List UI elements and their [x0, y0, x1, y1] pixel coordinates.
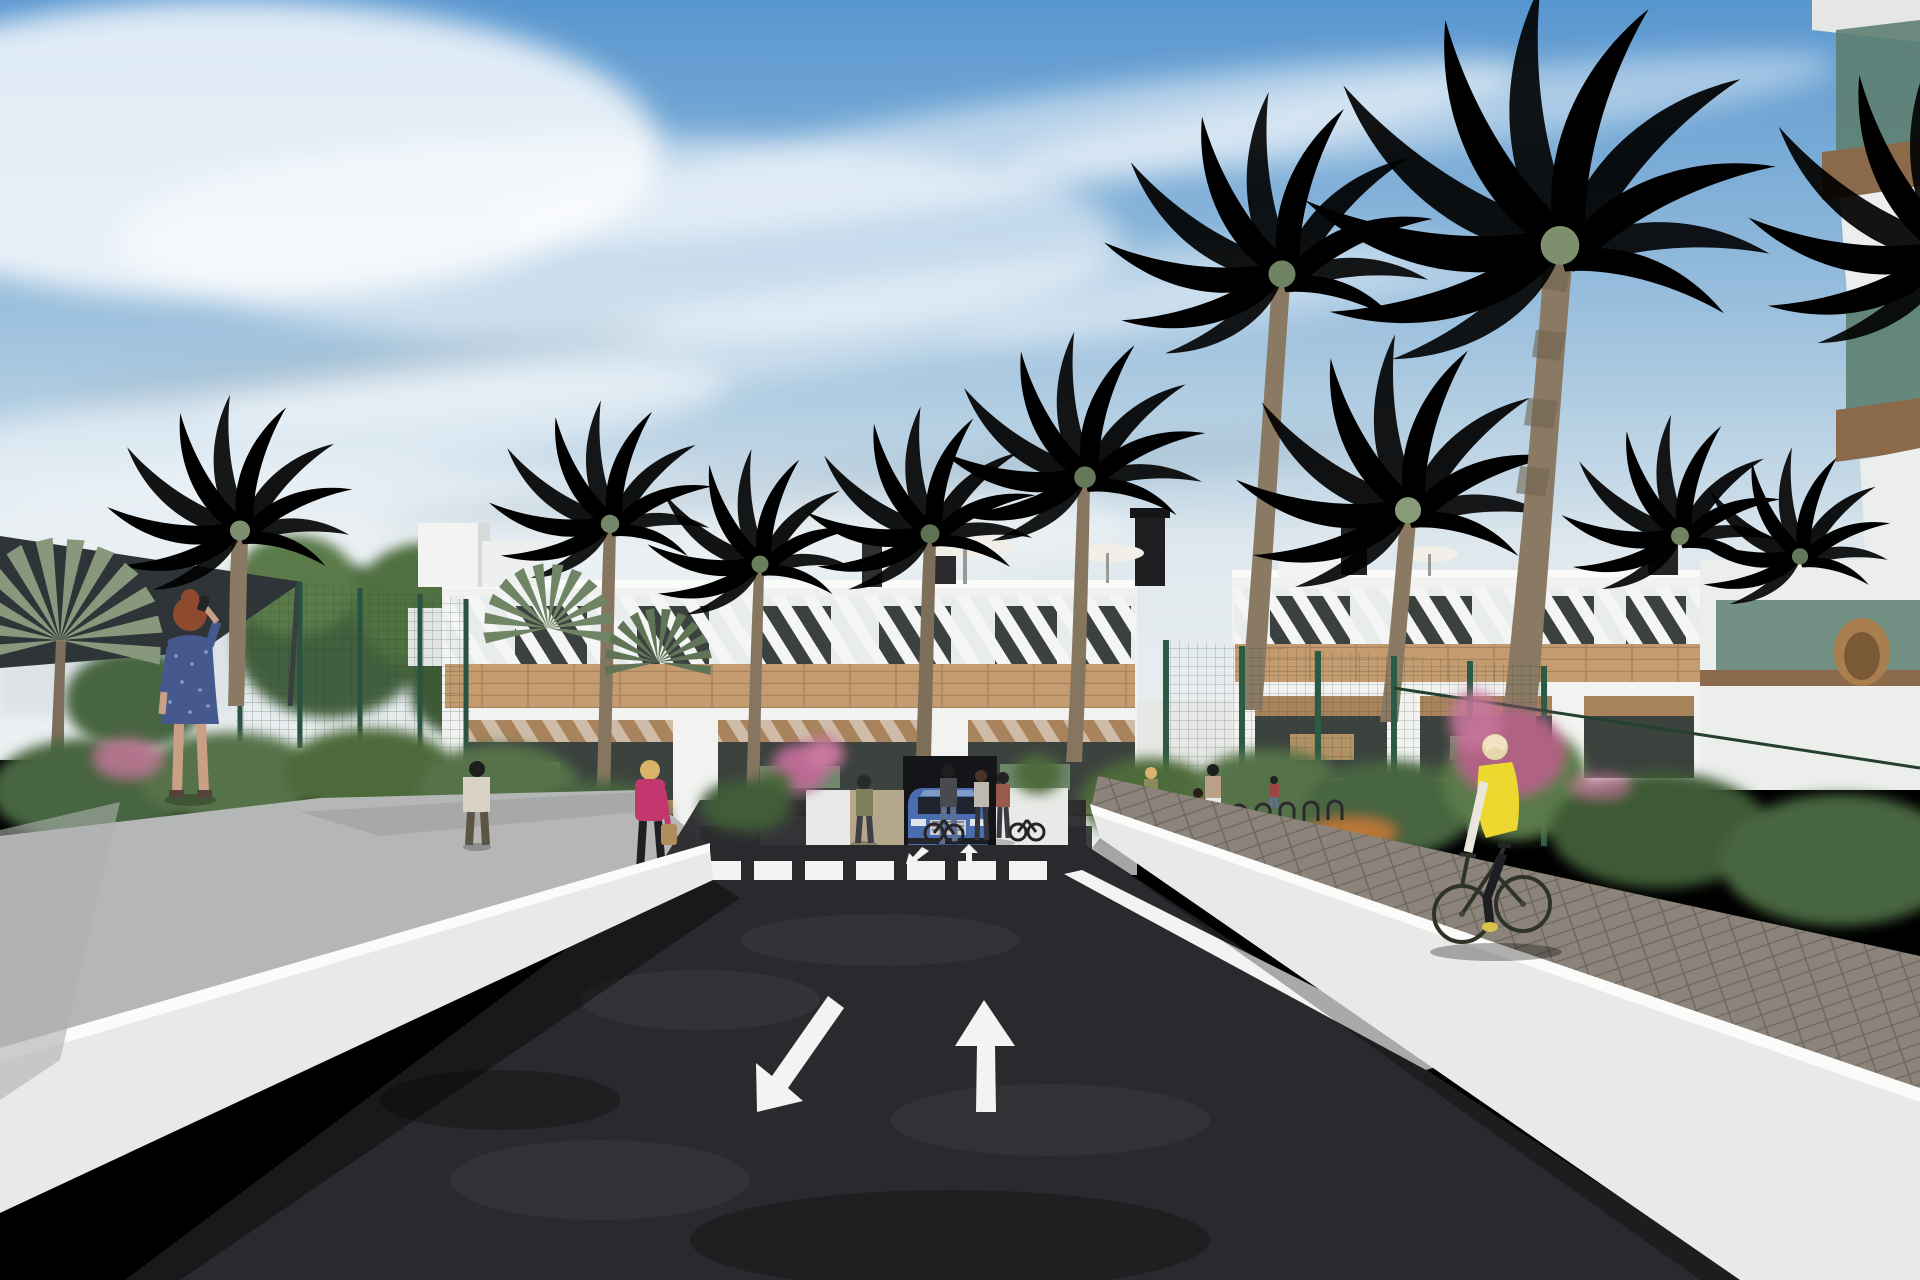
right-edge-building [1700, 560, 1920, 790]
wood-clad-band [445, 664, 1135, 710]
top-floor-pergola-band [445, 596, 1135, 666]
roof-stair-bulkhead [418, 523, 480, 587]
architectural-render [0, 0, 1920, 1280]
handbag [661, 824, 677, 845]
saddle [1498, 842, 1511, 848]
pink-flowers [94, 738, 162, 778]
top-floor-pergola-band [1235, 588, 1700, 646]
rider-shoe [1482, 922, 1498, 932]
headlight [911, 819, 926, 826]
render-canvas [0, 0, 1920, 1280]
